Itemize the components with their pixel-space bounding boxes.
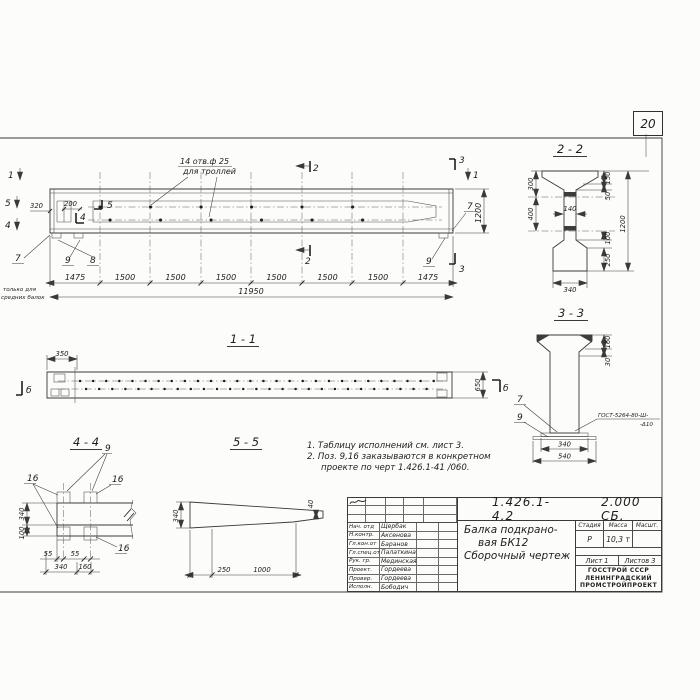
drawing-canvas: 14 отв.ф 25 для троллей 320 200 5 4 1 5 … — [0, 0, 700, 700]
dim-1200-label: 1200 — [474, 203, 483, 223]
signature-name: Баранов — [380, 540, 417, 548]
signature-row: Гл.спец.отПалаткина — [348, 549, 457, 558]
only-note-line1: только для — [3, 287, 37, 293]
signature-mark — [417, 532, 439, 540]
sheet-total-field: Листов 3 — [619, 556, 661, 566]
hole-note-line1: 14 отв.ф 25 — [180, 157, 229, 166]
dim-160-label: 160 — [604, 336, 612, 349]
section-5-5-outline — [190, 502, 323, 528]
cut-mark-2-top: 2 — [313, 164, 319, 174]
signature-name: Мединская — [380, 558, 417, 566]
dim-1000-label: 1000 — [253, 566, 270, 574]
dim-40-label: 40 — [307, 500, 315, 509]
sheet-number-field: Лист 1 — [576, 556, 619, 566]
signature-name: Бободич — [380, 583, 417, 591]
organization-name: ГОССТРОЙ СССР ЛЕНИНГРАДСКИЙ ПРОМСТРОЙПРО… — [576, 566, 661, 591]
org-line1: ГОССТРОЙ СССР — [588, 567, 649, 575]
cut-mark-2-bottom: 2 — [305, 257, 311, 267]
stage-value: Р — [576, 531, 604, 548]
sheet-number-box: 20 — [633, 111, 663, 136]
signature-mark — [417, 523, 439, 531]
dim-650-label: 650 — [474, 379, 482, 392]
signature-name: Палаткина — [380, 549, 417, 557]
notes-block: 1. Таблицу исполнений см. лист 3. 2. Поз… — [307, 441, 491, 474]
signature-role: Гл.кон.от — [348, 540, 380, 548]
signature-role: Н.контр. — [348, 532, 380, 540]
dim-100-s44-label: 100 — [18, 527, 26, 540]
main-elevation-view: 14 отв.ф 25 для троллей 320 200 5 4 1 5 … — [1, 156, 489, 301]
section-3-3-view: 3 - 3 160 30 7 9 ГОСТ-5264-80-Ш- -Δ10 34… — [492, 306, 660, 463]
org-line3: ПРОМСТРОЙПРОЕКТ — [580, 582, 657, 590]
pos-9-s33-label: 9 — [517, 413, 523, 423]
chain-dim-label: 1500 — [317, 273, 337, 282]
dim-300-label: 300 — [527, 178, 535, 191]
pos-9-label: 9 — [65, 256, 71, 266]
section-2-2-outline — [542, 171, 598, 271]
hole-note-line2: для троллей — [182, 167, 236, 176]
section-1-1-view: 1 - 1 350 650 б — [16, 332, 488, 403]
signature-row: Провер.Гордеева — [348, 575, 457, 584]
sheet-number: 20 — [640, 117, 655, 131]
document-number: 1.426.1-4.2 — [492, 495, 563, 523]
note-line-1: 1. Таблицу исполнений см. лист 3. — [307, 441, 491, 452]
stage-mass-scale-values: Р 10,3 т — [576, 531, 661, 548]
pos-16-left-label: 16 — [27, 474, 39, 484]
signature-role: Нач. отд — [348, 523, 380, 531]
note-line-3: проекте по черт 1.426.1-41 /060. — [307, 463, 491, 474]
signature-mark — [417, 558, 439, 566]
dim-50-label: 50 — [604, 192, 612, 201]
dim-200-label: 200 — [64, 200, 77, 208]
stage-label: Стадия — [576, 521, 604, 531]
dim-100-label: 100 — [604, 232, 612, 245]
signature-mark — [417, 566, 439, 574]
document-title-line1: Балка подкрано- — [464, 524, 575, 537]
signature-mark — [417, 575, 439, 583]
drawing-sheet: 14 отв.ф 25 для троллей 320 200 5 4 1 5 … — [0, 0, 700, 700]
dim-140-label: 140 — [564, 205, 577, 213]
section-3-3-outline — [537, 335, 592, 433]
pos-7-s33-label: 7 — [517, 395, 523, 405]
signature-row: Гл.кон.отБаранов — [348, 540, 457, 549]
stage-mass-scale-header: Стадия Масса Масшт. — [576, 521, 661, 531]
section-2-2-view: 2 - 2 300 400 150 50 1200 100 250 140 34… — [527, 142, 649, 294]
section-5-5-view: 5 - 5 340 40 250 1000 — [172, 435, 323, 578]
scale-value — [633, 531, 661, 548]
dim-540-label: 540 — [558, 453, 571, 461]
cut-mark-b-right: б — [503, 384, 509, 394]
dim-340-s22-label: 340 — [564, 286, 577, 294]
section-2-2-title: 2 - 2 — [557, 142, 583, 156]
signature-role: Рук. гр. — [348, 558, 380, 566]
pos-16-bottom-label: 16 — [118, 544, 130, 554]
chain-dim-label: 1475 — [65, 273, 85, 282]
signature-role: Исполн. — [348, 583, 380, 591]
title-block-signatures: Нач. отдЩербак Н.контр.Аксенова Гл.кон.о… — [348, 498, 458, 591]
section-5-5-title: 5 - 5 — [233, 435, 259, 449]
document-title-line2: вая БК12 — [464, 537, 575, 550]
dim-160-label: 160 — [79, 563, 92, 571]
cut-mark-5-left: 5 — [5, 199, 11, 209]
dim-250-label: 250 — [218, 566, 231, 574]
dim-340-s44-label: 340 — [55, 563, 68, 571]
signature-role: Гл.спец.от — [348, 549, 380, 557]
dim-30-label: 30 — [604, 358, 612, 367]
pos-7-label: 7 — [15, 254, 21, 264]
pos-9-right-label: 9 — [426, 257, 432, 267]
pos-9-s44-label: 9 — [105, 444, 111, 454]
cut-mark-4-left: 4 — [5, 221, 11, 231]
beam-outline — [50, 189, 453, 233]
document-number-row: 1.426.1-4.2 2.000 СБ. — [458, 498, 661, 521]
document-code: 2.000 СБ. — [601, 495, 661, 523]
dim-350-label: 350 — [56, 350, 69, 358]
dim-total-label: 11950 — [238, 287, 263, 296]
cut-mark-3-bottom: 3 — [459, 265, 465, 275]
cut-mark-b-left: б — [26, 386, 32, 396]
signature-mark — [417, 549, 439, 557]
signature-mark — [417, 583, 439, 591]
signature-mark — [417, 540, 439, 548]
pos-16-right-label: 16 — [112, 475, 124, 485]
dim-1200-s22-label: 1200 — [619, 215, 627, 232]
cut-mark-4: 4 — [80, 213, 86, 223]
dim-400-label: 400 — [527, 208, 535, 221]
section-1-1-outline — [47, 372, 452, 398]
signature-name: Аксенова — [380, 532, 417, 540]
sheet-count-row: Лист 1 Листов 3 — [576, 556, 661, 566]
signature-row: Проект.Гордеева — [348, 566, 457, 575]
dim-320-label: 320 — [30, 202, 43, 210]
chain-dim-label: 1500 — [216, 273, 236, 282]
section-4-4-title: 4 - 4 — [73, 435, 99, 449]
section-3-3-title: 3 - 3 — [558, 306, 584, 320]
weld-note-line1: ГОСТ-5264-80-Ш- — [598, 413, 648, 419]
signature-name: Гордеева — [380, 575, 417, 583]
dim-55-label: 55 — [44, 550, 53, 558]
signature-name: Щербак — [380, 523, 417, 531]
cut-mark-5: 5 — [107, 201, 113, 211]
cut-mark-1-right: 1 — [473, 171, 479, 181]
section-1-1-title: 1 - 1 — [230, 332, 256, 346]
chain-dim-label: 1475 — [418, 273, 438, 282]
dim-340-s55-label: 340 — [172, 510, 180, 523]
cut-mark-3-top: 3 — [459, 156, 465, 166]
pos-7-right-label: 7 — [467, 202, 473, 212]
dim-55-label: 55 — [71, 550, 80, 558]
cut-mark-1-left: 1 — [8, 171, 14, 181]
dim-150-label: 150 — [604, 172, 612, 185]
signature-role: Проект. — [348, 566, 380, 574]
mass-value: 10,3 т — [604, 531, 633, 548]
chain-dim-label: 1500 — [165, 273, 185, 282]
chain-dim-label: 1500 — [115, 273, 135, 282]
chain-dim-label: 1500 — [266, 273, 286, 282]
signature-role: Провер. — [348, 575, 380, 583]
weld-note-line2: -Δ10 — [640, 422, 653, 428]
only-note-line2: средних балок — [1, 295, 45, 301]
dim-250-label: 250 — [604, 254, 612, 267]
section-4-4-view: 4 - 4 9 16 16 16 340 100 55 55 — [18, 435, 136, 575]
mass-label: Масса — [604, 521, 633, 531]
title-block: Нач. отдЩербак Н.контр.Аксенова Гл.кон.о… — [347, 497, 662, 592]
dim-340v-label: 340 — [18, 508, 26, 521]
signature-row: Н.контр.Аксенова — [348, 532, 457, 541]
chain-dim-label: 1500 — [368, 273, 388, 282]
scale-label: Масшт. — [633, 521, 661, 531]
document-title: Балка подкрано- вая БК12 Сборочный черте… — [458, 521, 576, 591]
signature-row: Нач. отдЩербак — [348, 523, 457, 532]
dim-340-s33-label: 340 — [558, 441, 571, 449]
signature-row: Исполн.Бободич — [348, 583, 457, 591]
note-line-2: 2. Поз. 9,16 заказываются в конкретном — [307, 452, 491, 463]
pos-8-label: 8 — [90, 256, 96, 266]
document-title-line3: Сборочный чертеж — [464, 550, 575, 563]
signature-row: Рук. гр.Мединская — [348, 558, 457, 567]
signature-name: Гордеева — [380, 566, 417, 574]
